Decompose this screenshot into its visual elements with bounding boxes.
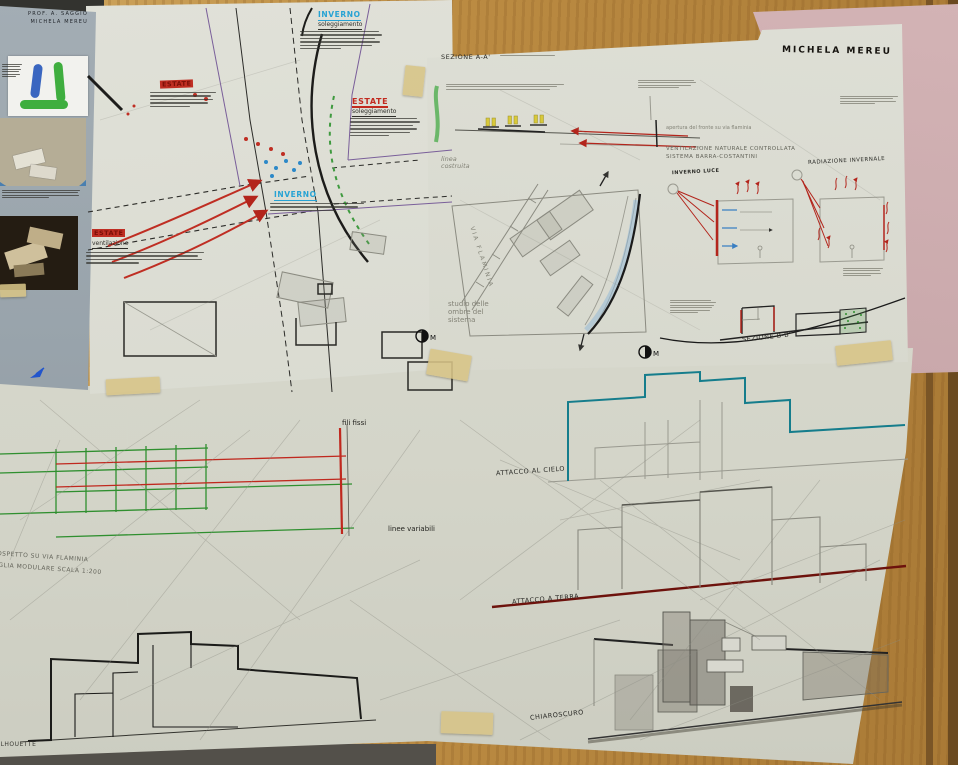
drawing-board: M [0, 0, 958, 765]
pencil-note [638, 80, 696, 88]
pencil-note [840, 96, 898, 104]
poster-plan-photo [0, 118, 86, 186]
blue-blob [30, 64, 43, 99]
poster-caption-note [2, 64, 22, 77]
pencil-note [446, 84, 564, 90]
masking-tape [0, 284, 26, 298]
model-card [14, 263, 45, 278]
masking-tape [441, 711, 494, 735]
masking-tape [402, 65, 425, 97]
poster-model-photo [0, 216, 78, 290]
pencil-note [670, 300, 716, 313]
handwritten-note [350, 118, 420, 136]
pencil-note [500, 55, 555, 56]
handwritten-note [150, 92, 216, 107]
green-blob [53, 62, 65, 103]
masking-tape [106, 377, 161, 396]
poster-paragraph-note [2, 190, 80, 198]
handwritten-note [300, 31, 382, 49]
green-bar [20, 100, 68, 109]
pencil-note [843, 268, 883, 276]
handwritten-note [86, 252, 204, 264]
handwritten-note [270, 203, 364, 211]
